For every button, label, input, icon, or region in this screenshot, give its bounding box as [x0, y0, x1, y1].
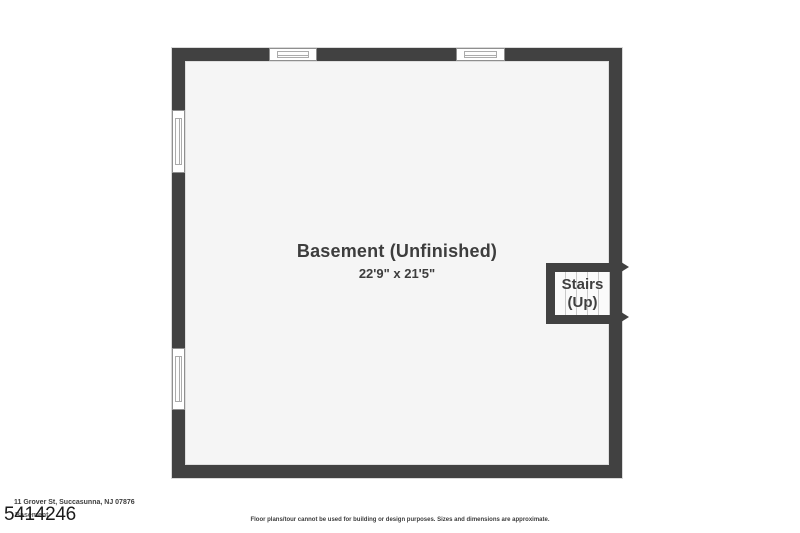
window-icon	[172, 348, 185, 410]
window-icon	[456, 48, 505, 61]
window-pane	[175, 118, 182, 165]
stairs-wall-notch	[621, 262, 629, 272]
window-pane	[464, 51, 497, 58]
stairs-wall-notch	[621, 312, 629, 322]
window-icon	[172, 110, 185, 173]
stairs-label-line2: (Up)	[568, 294, 598, 312]
window-pane	[175, 356, 182, 402]
stairs-label-line1: Stairs	[562, 276, 604, 294]
window-icon	[269, 48, 317, 61]
floorplan-page: Basement (Unfinished) 22'9" x 21'5" Stai…	[0, 0, 800, 533]
stairs: Stairs (Up)	[546, 263, 610, 324]
disclaimer-text: Floor plans/tour cannot be used for buil…	[0, 517, 800, 523]
window-pane	[277, 51, 309, 58]
stairs-label: Stairs (Up)	[555, 272, 610, 315]
